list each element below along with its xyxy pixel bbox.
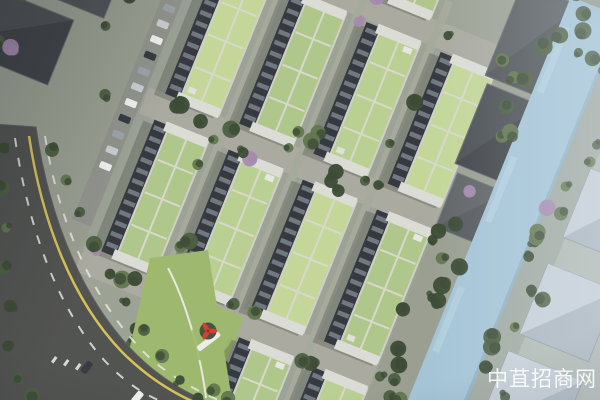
scene-canvas [0,0,600,400]
atmospheric-haze [432,0,600,400]
watermark-text: 中苴招商网 [487,363,597,393]
architectural-rendering-photo: 中苴招商网 [0,0,600,400]
